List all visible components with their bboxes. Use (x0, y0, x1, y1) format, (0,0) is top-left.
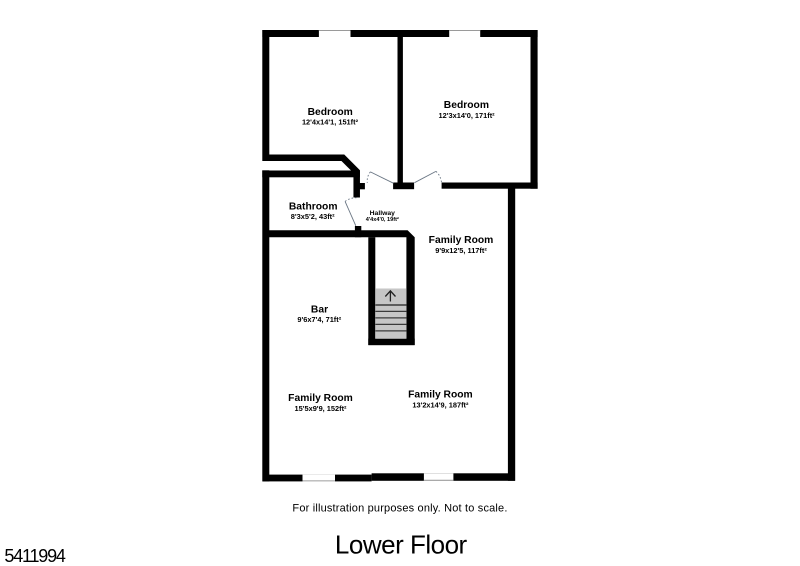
svg-text:Bedroom: Bedroom (444, 100, 489, 111)
svg-text:Lower Floor: Lower Floor (335, 530, 468, 560)
svg-text:For illustration purposes only: For illustration purposes only. Not to s… (292, 503, 507, 515)
svg-text:Bathroom: Bathroom (289, 201, 338, 212)
svg-text:12'4x14'1, 151ft²: 12'4x14'1, 151ft² (302, 118, 359, 127)
svg-text:4'4x4'0, 19ft²: 4'4x4'0, 19ft² (366, 216, 399, 223)
svg-text:12'3x14'0, 171ft²: 12'3x14'0, 171ft² (439, 111, 496, 120)
svg-text:5411994: 5411994 (4, 546, 66, 566)
svg-text:9'6x7'4, 71ft²: 9'6x7'4, 71ft² (297, 315, 341, 324)
svg-text:Family Room: Family Room (408, 390, 473, 401)
svg-text:Family Room: Family Room (429, 235, 494, 246)
svg-text:9'9x12'5, 117ft²: 9'9x12'5, 117ft² (435, 246, 487, 255)
svg-text:15'5x9'9, 152ft²: 15'5x9'9, 152ft² (295, 404, 348, 413)
svg-text:Bar: Bar (311, 304, 328, 315)
svg-text:13'2x14'9, 187ft²: 13'2x14'9, 187ft² (412, 401, 469, 410)
svg-text:Family Room: Family Room (288, 393, 353, 404)
svg-text:8'3x5'2, 43ft²: 8'3x5'2, 43ft² (291, 212, 335, 221)
